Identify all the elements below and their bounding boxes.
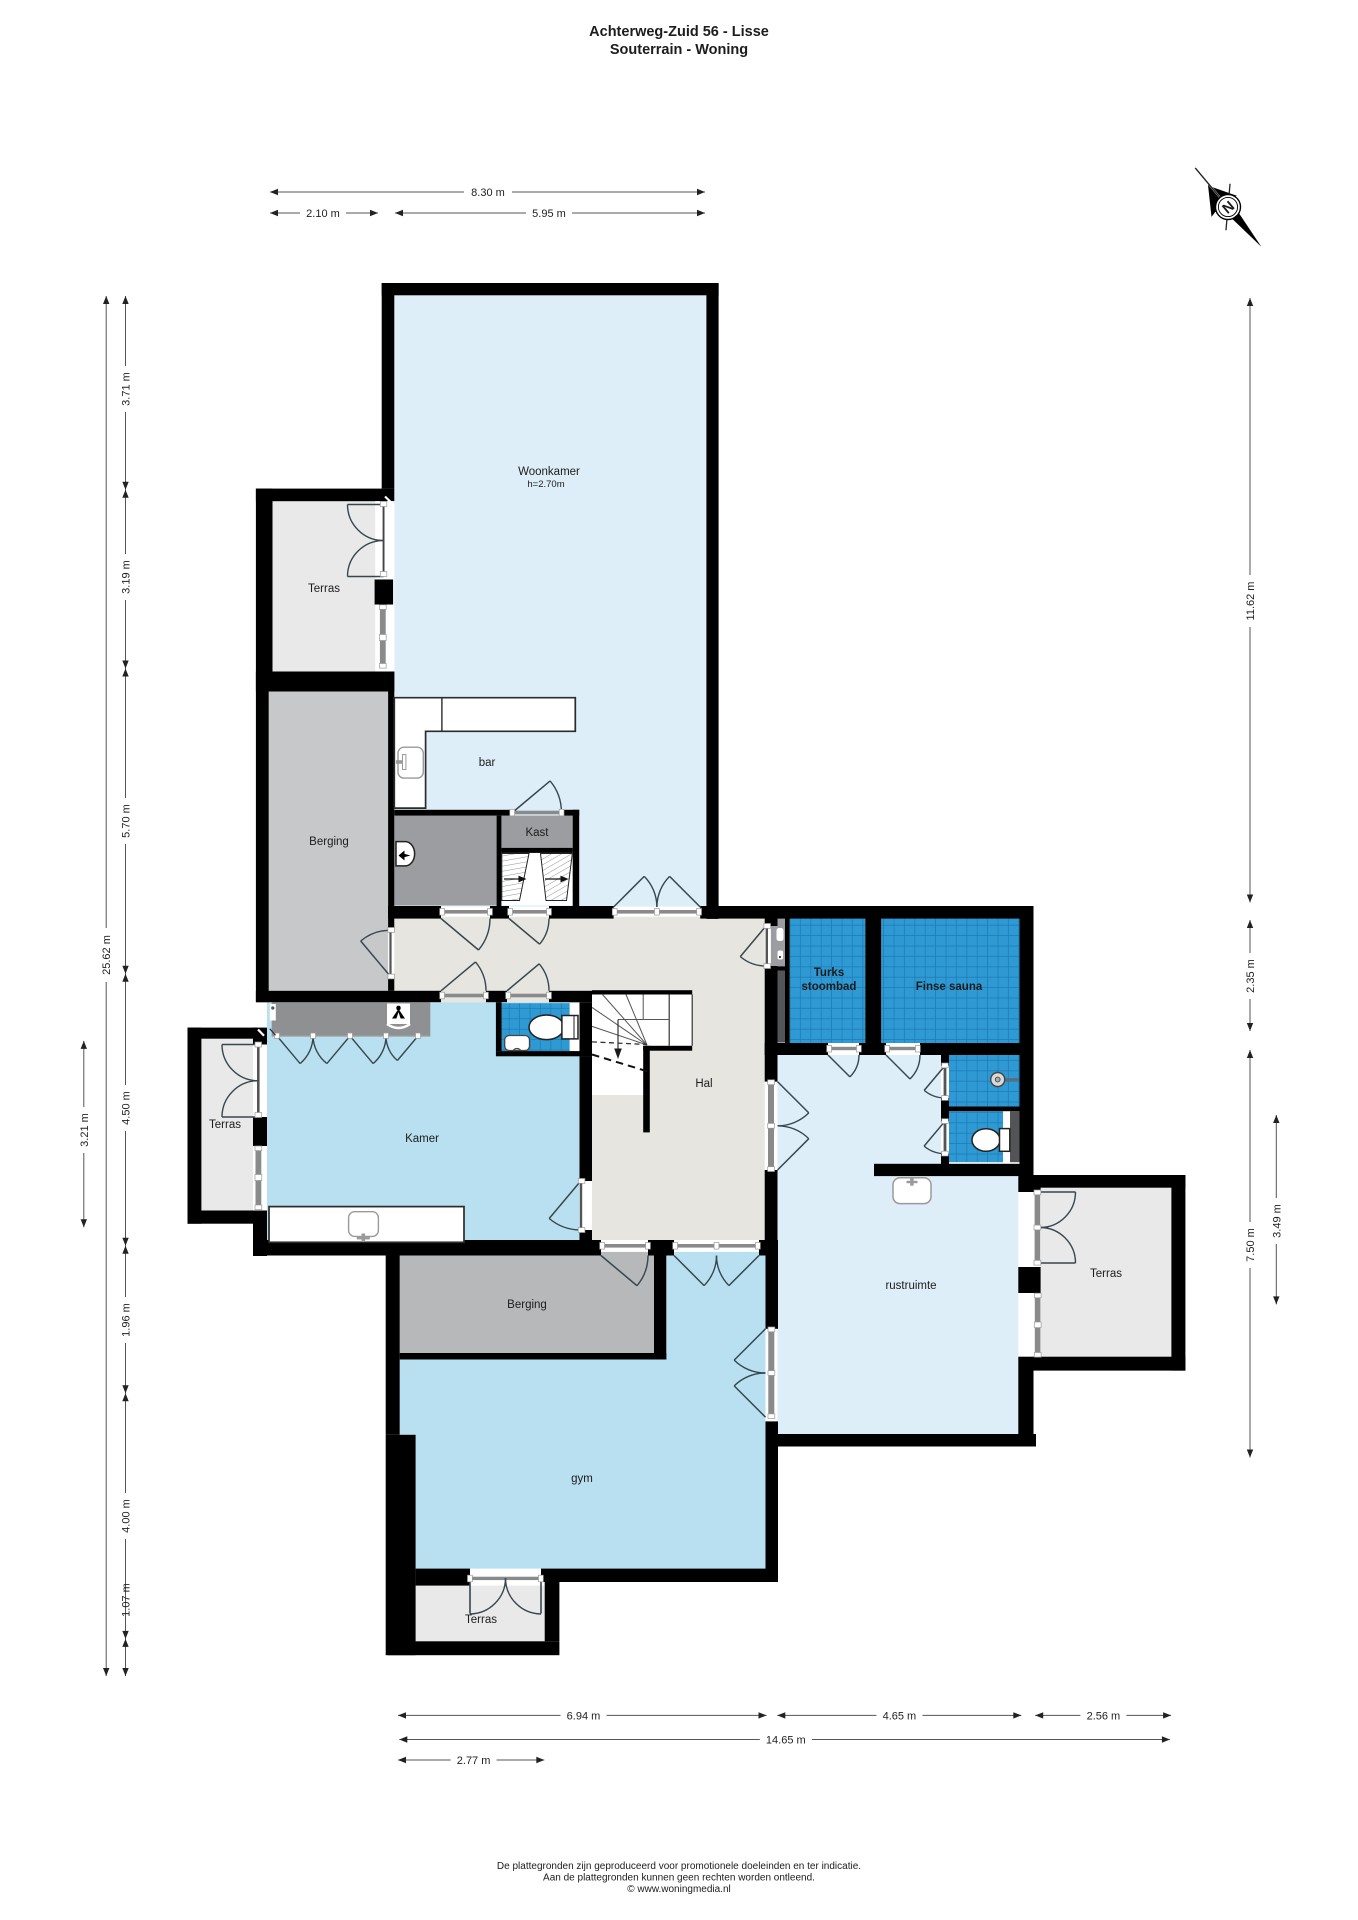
svg-text:Hal: Hal [695,1078,712,1090]
svg-text:Kamer: Kamer [405,1133,439,1145]
svg-text:6.94 m: 6.94 m [567,1710,601,1722]
svg-text:h=2.70m: h=2.70m [527,479,564,490]
svg-text:3.49 m: 3.49 m [1271,1204,1283,1238]
svg-text:5.70 m: 5.70 m [121,804,133,838]
svg-text:Achterweg-Zuid 56 - Lisse: Achterweg-Zuid 56 - Lisse [589,24,769,40]
svg-text:25.62 m: 25.62 m [101,935,113,975]
svg-text:Finse sauna: Finse sauna [916,981,983,993]
svg-text:Souterrain - Woning: Souterrain - Woning [610,42,748,58]
svg-text:1.96 m: 1.96 m [121,1303,133,1337]
svg-text:Berging: Berging [507,1299,547,1311]
svg-text:3.21 m: 3.21 m [79,1113,91,1147]
svg-text:Terras: Terras [308,583,340,595]
svg-text:bar: bar [479,757,496,769]
svg-text:5.95 m: 5.95 m [532,208,566,220]
svg-text:4.50 m: 4.50 m [121,1091,133,1125]
svg-text:11.62 m: 11.62 m [1245,582,1257,621]
svg-text:4.00 m: 4.00 m [121,1499,133,1533]
svg-text:© www.woningmedia.nl: © www.woningmedia.nl [627,1884,731,1895]
svg-text:De plattegronden zijn geproduc: De plattegronden zijn geproduceerd voor … [497,1861,861,1872]
svg-text:Kast: Kast [525,827,549,839]
svg-text:7.50 m: 7.50 m [1245,1228,1257,1262]
svg-text:2.10 m: 2.10 m [306,208,340,220]
svg-text:14.65 m: 14.65 m [766,1735,806,1747]
svg-text:3.71 m: 3.71 m [121,372,133,406]
svg-text:1.07 m: 1.07 m [121,1583,133,1617]
svg-text:4.65 m: 4.65 m [883,1710,917,1722]
svg-text:2.35 m: 2.35 m [1245,959,1257,993]
svg-text:2.56 m: 2.56 m [1087,1710,1121,1722]
svg-text:Terras: Terras [465,1614,497,1626]
svg-text:Woonkamer: Woonkamer [518,466,580,478]
svg-text:3.19 m: 3.19 m [121,560,133,594]
svg-text:Aan de plattegronden kunnen ge: Aan de plattegronden kunnen geen rechten… [543,1873,815,1884]
svg-text:2.77 m: 2.77 m [457,1755,491,1767]
svg-text:Terras: Terras [209,1119,241,1131]
svg-text:Terras: Terras [1090,1268,1122,1280]
svg-text:8.30 m: 8.30 m [471,187,505,199]
svg-text:rustruimte: rustruimte [885,1280,936,1292]
svg-text:Turks: Turks [814,967,844,979]
svg-text:gym: gym [571,1473,593,1485]
svg-text:Berging: Berging [309,836,349,848]
svg-text:stoombad: stoombad [802,981,857,993]
